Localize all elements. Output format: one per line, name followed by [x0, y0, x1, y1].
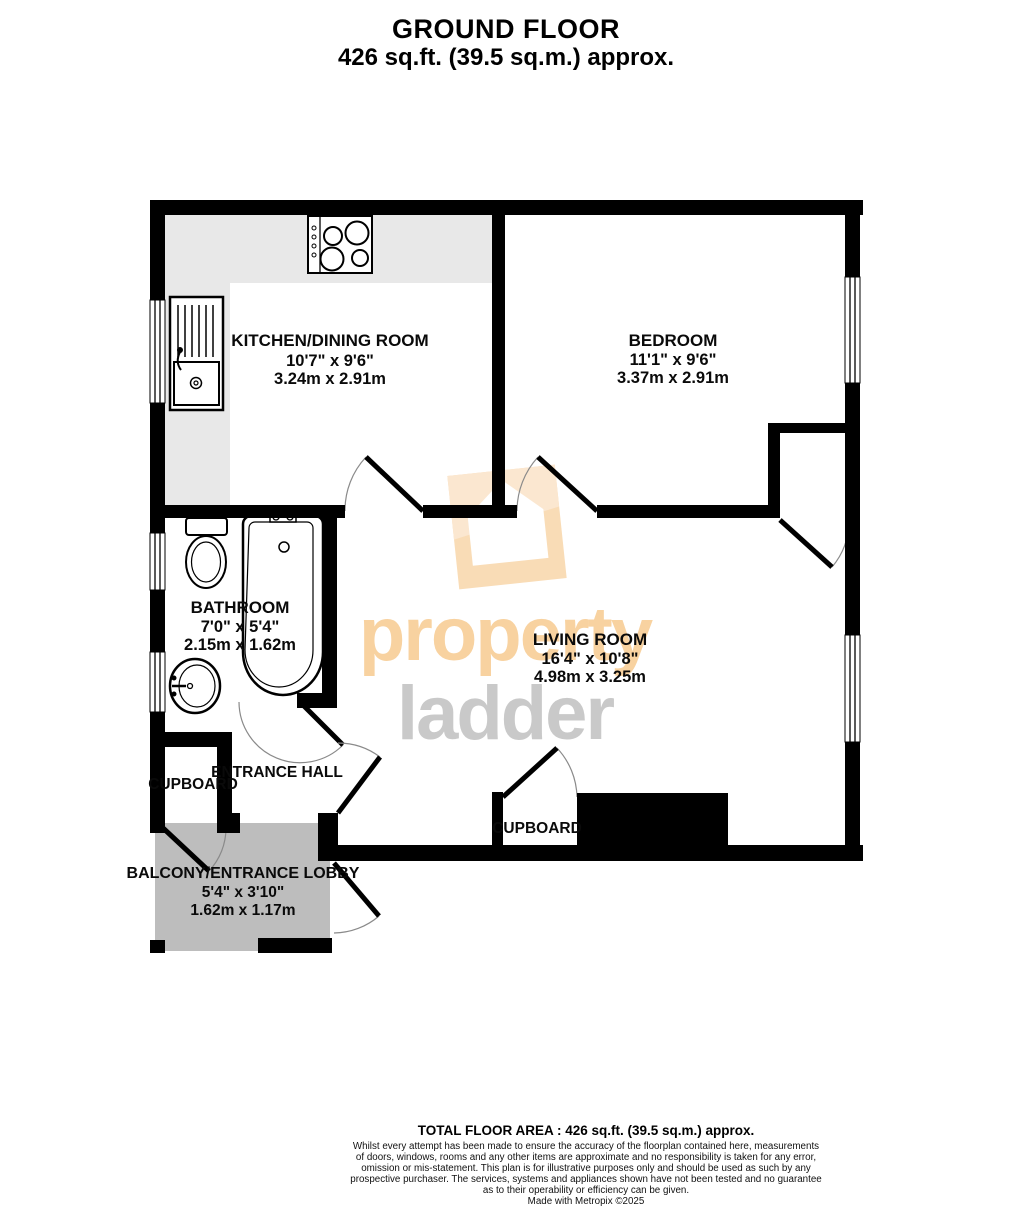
label-balcony-metric: 1.62m x 1.17m — [190, 902, 295, 919]
label-bathroom-imperial: 7'0" x 5'4" — [201, 618, 280, 636]
footer: TOTAL FLOOR AREA : 426 sq.ft. (39.5 sq.m… — [180, 1122, 992, 1207]
label-balcony-imperial: 5'4" x 3'10" — [202, 884, 284, 901]
kitchen-sink-icon — [170, 297, 223, 410]
label-living-name: LIVING ROOM — [533, 630, 647, 649]
metropix-credit: Made with Metropix ©2025 — [180, 1197, 992, 1207]
label-cupboard-hall: CUPBOARD — [148, 776, 238, 793]
label-kitchen-name: KITCHEN/DINING ROOM — [231, 331, 428, 350]
label-kitchen-imperial: 10'7" x 9'6" — [286, 352, 374, 370]
door-bedroom-alcove — [780, 520, 849, 567]
label-bathroom-metric: 2.15m x 1.62m — [184, 636, 296, 654]
label-bathroom-name: BATHROOM — [191, 598, 290, 617]
label-kitchen-metric: 3.24m x 2.91m — [274, 370, 386, 388]
floorplan-drawing: property ladder — [0, 0, 1012, 1200]
watermark-house-icon — [447, 465, 566, 590]
window-bedroom — [845, 277, 860, 383]
basin-icon — [170, 659, 220, 713]
disclaimer-line: prospective purchaser. The services, sys… — [180, 1175, 992, 1186]
label-bedroom-imperial: 11'1" x 9'6" — [630, 351, 717, 369]
toilet-icon — [186, 518, 227, 588]
door-kitchen — [345, 457, 423, 511]
label-living-metric: 4.98m x 3.25m — [534, 668, 646, 686]
hob-icon — [308, 216, 372, 273]
window-kitchen — [150, 300, 165, 403]
total-floor-area: TOTAL FLOOR AREA : 426 sq.ft. (39.5 sq.m… — [180, 1122, 992, 1139]
label-balcony-name: BALCONY/ENTRANCE LOBBY — [127, 865, 360, 882]
window-bathroom-lower — [150, 652, 165, 712]
door-bathroom — [239, 702, 343, 763]
disclaimer-line: as to their operability or efficiency ca… — [180, 1186, 992, 1197]
floorplan-page: { "title": { "line1": "GROUND FLOOR", "l… — [0, 0, 1012, 1200]
window-bathroom-upper — [150, 533, 165, 590]
window-living-room — [845, 635, 860, 742]
door-living-room — [338, 743, 380, 813]
label-bedroom-metric: 3.37m x 2.91m — [617, 369, 729, 387]
label-bedroom-name: BEDROOM — [629, 331, 718, 350]
label-cupboard-living: CUPBOARD — [492, 820, 582, 837]
label-living-imperial: 16'4" x 10'8" — [542, 650, 639, 668]
